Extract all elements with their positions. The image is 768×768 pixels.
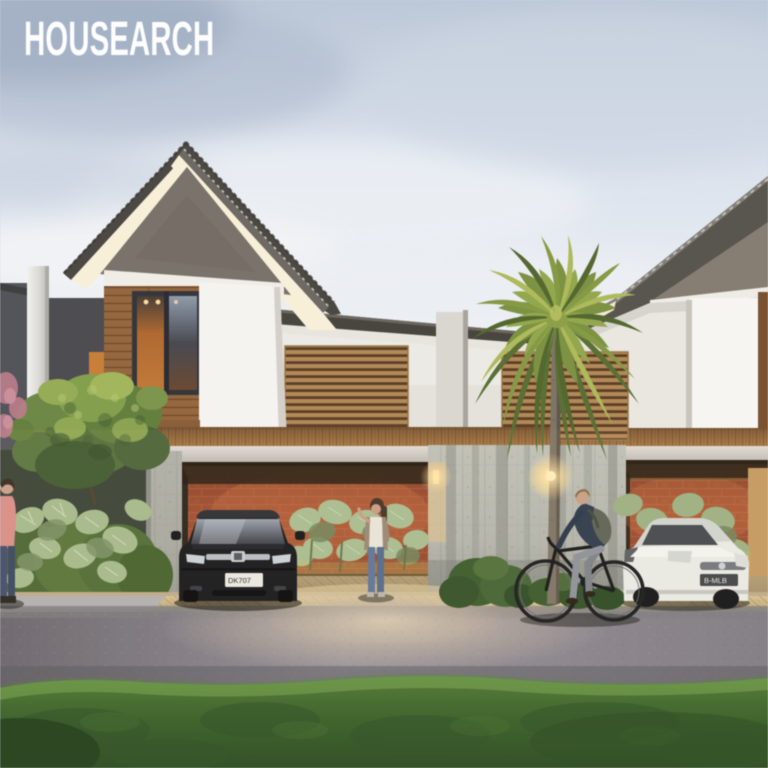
svg-text:HOUSEARCH: HOUSEARCH bbox=[24, 13, 214, 66]
